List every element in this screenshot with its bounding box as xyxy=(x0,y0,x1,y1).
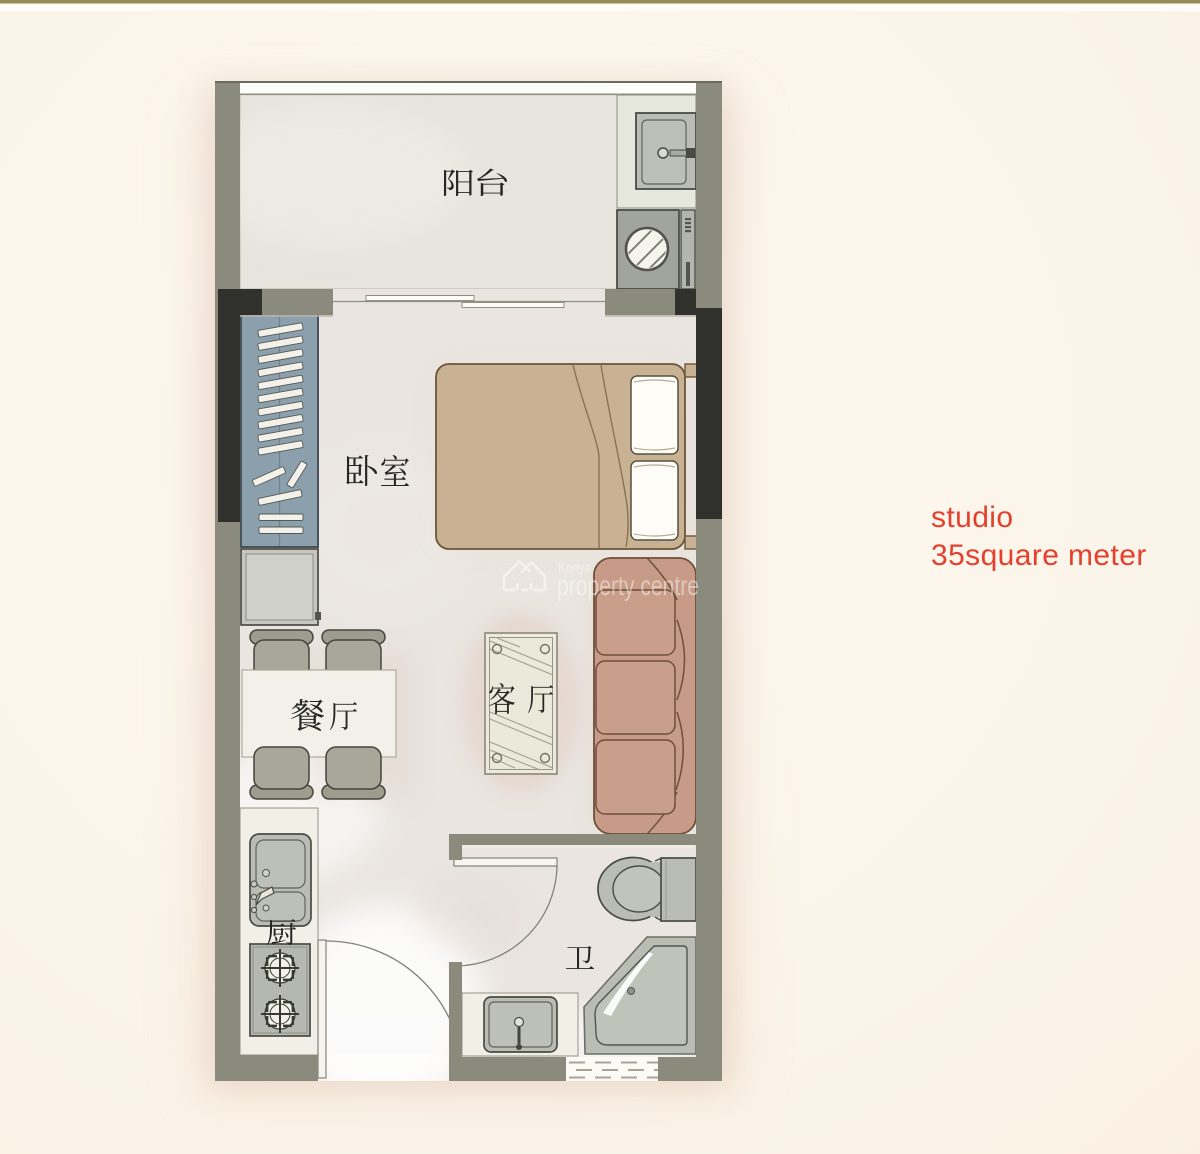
svg-text:property centre: property centre xyxy=(557,570,699,601)
svg-text:35square meter: 35square meter xyxy=(931,539,1147,572)
svg-text:studio: studio xyxy=(931,501,1013,534)
